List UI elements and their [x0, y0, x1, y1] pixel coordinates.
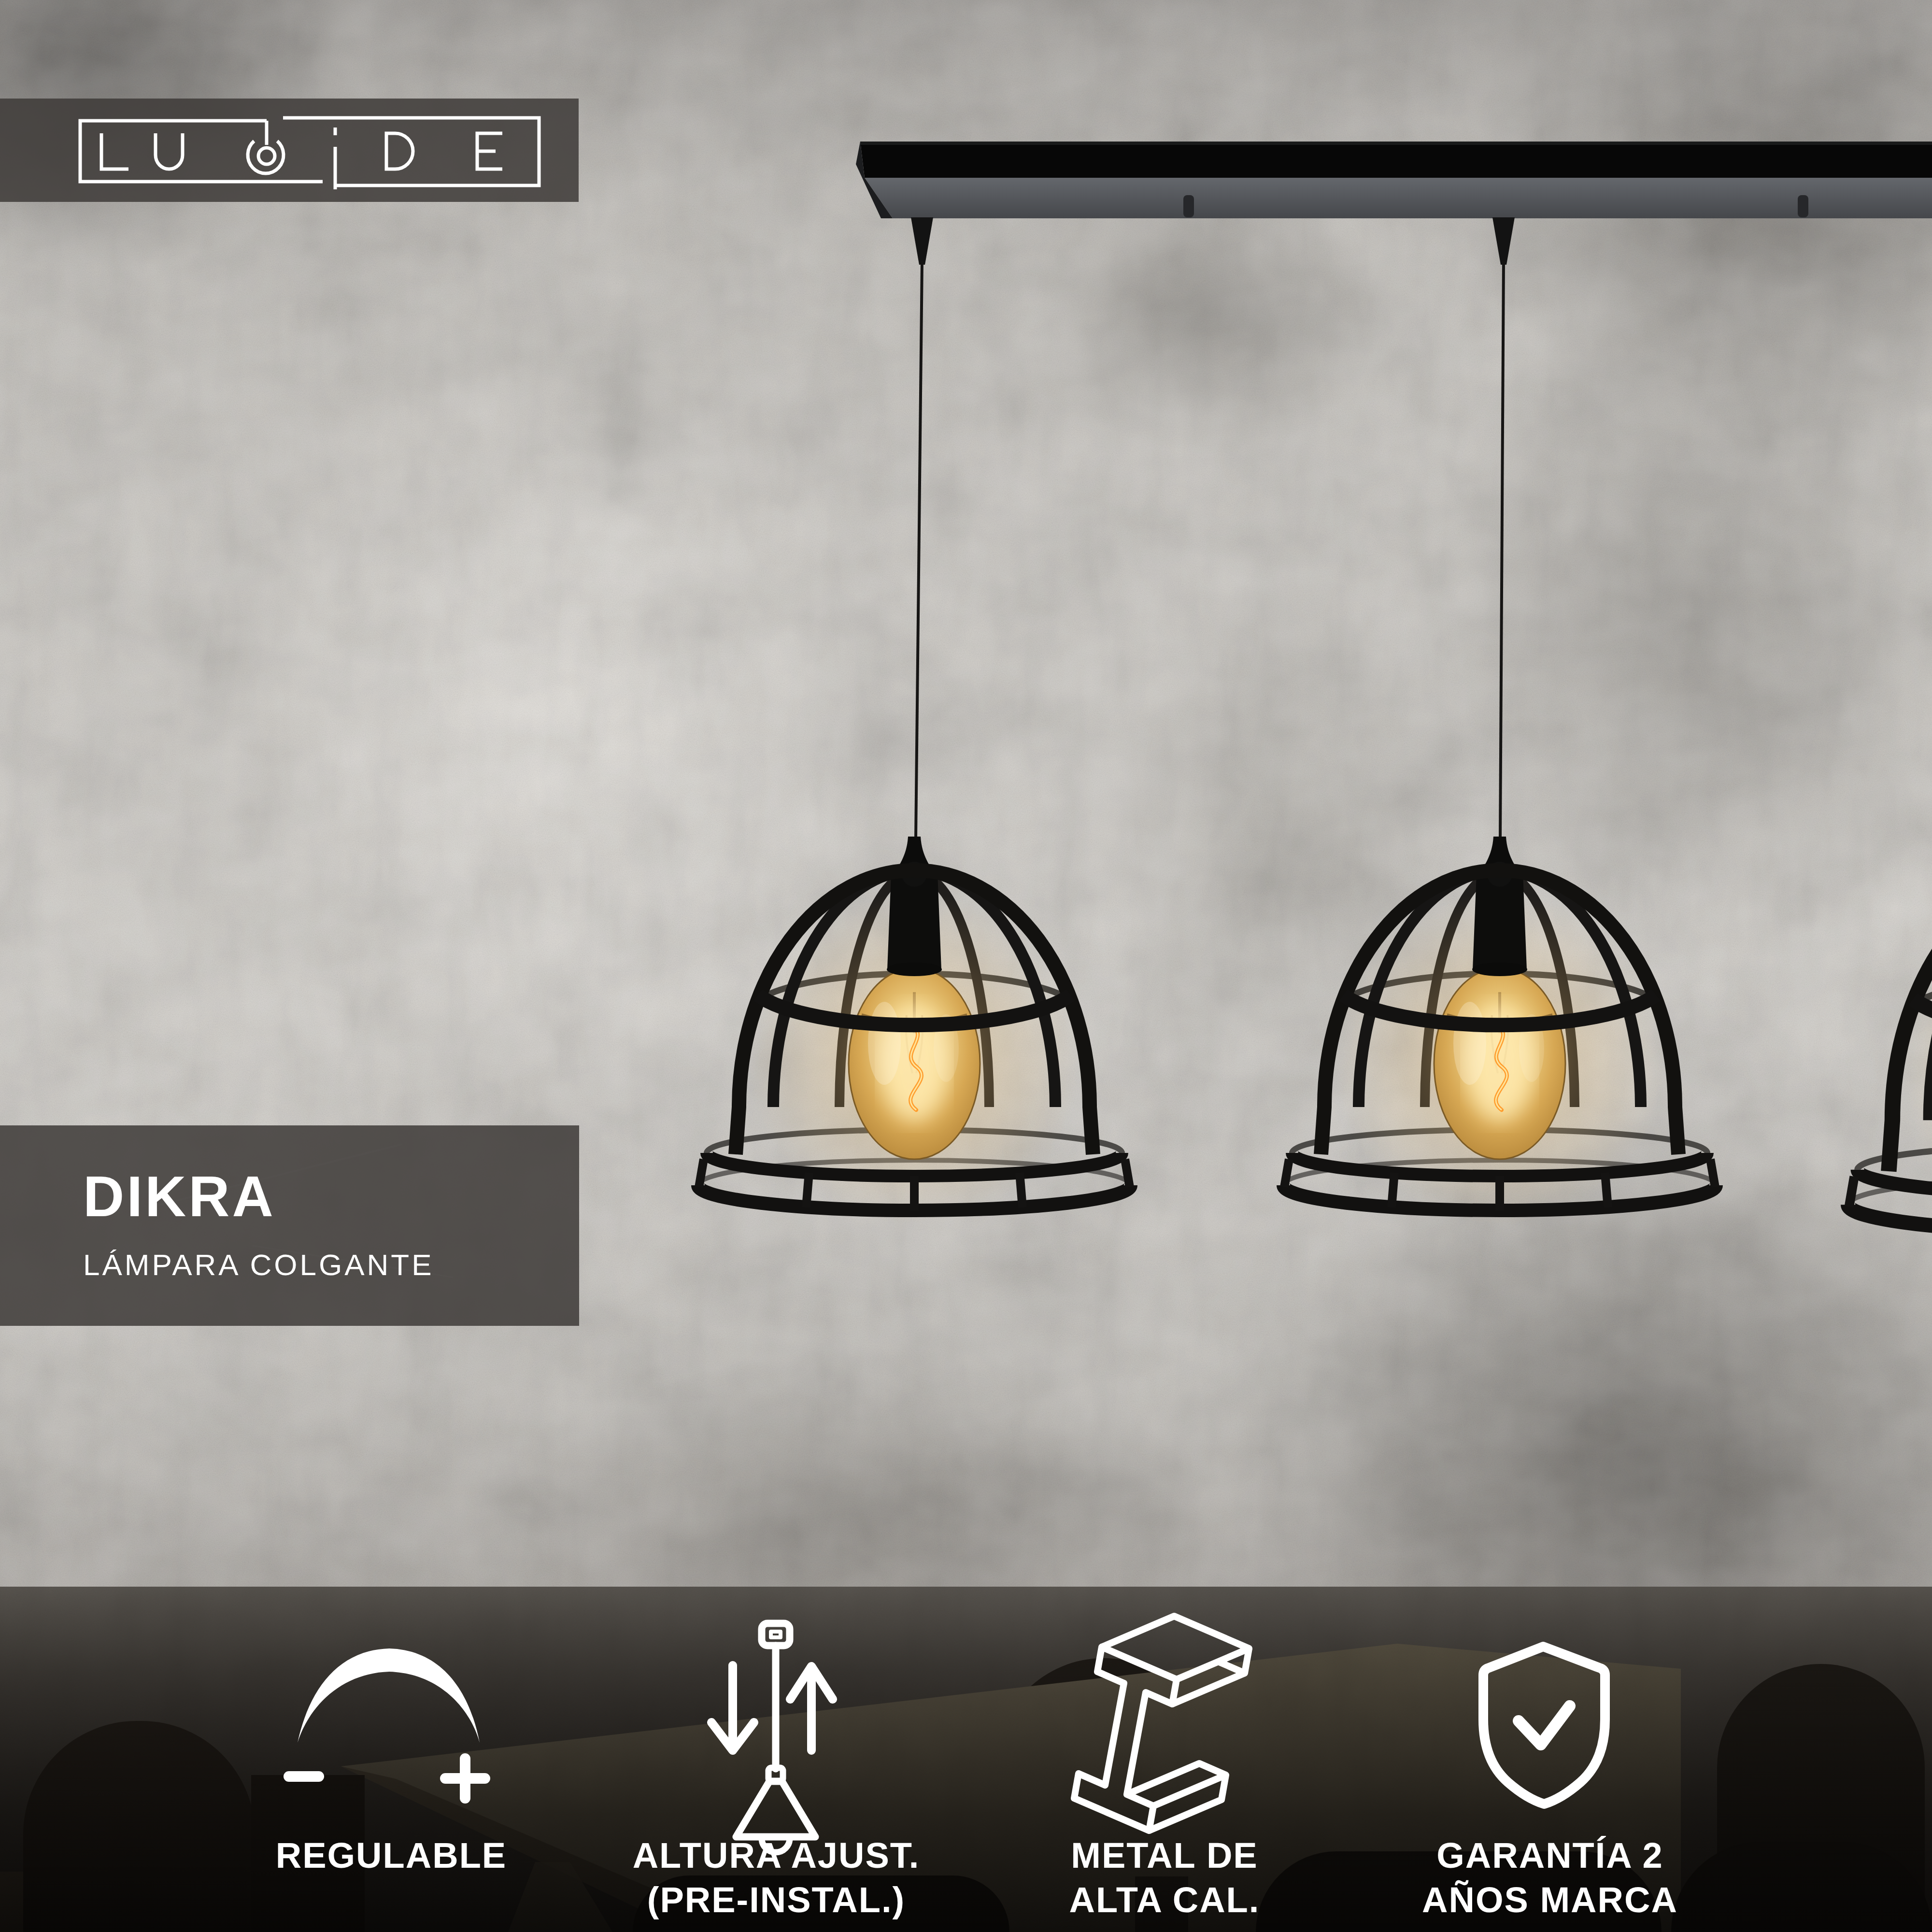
logo-letter-C: [248, 141, 284, 173]
feature-label-metal: METAL DE ALTA CAL.: [976, 1833, 1353, 1922]
feature-line: METAL DE: [976, 1833, 1353, 1878]
feature-line: ALTA CAL.: [976, 1878, 1353, 1922]
feature-line: GARANTÍA 2: [1362, 1833, 1738, 1878]
lucide-logo: [0, 99, 579, 202]
feature-label-dimmable: REGULABLE: [203, 1833, 580, 1878]
feature-line: (PRE-INSTAL.): [588, 1878, 965, 1922]
logo-letter-U: [156, 133, 183, 169]
feature-line: REGULABLE: [203, 1833, 580, 1878]
product-subtitle: LÁMPARA COLGANTE: [83, 1250, 579, 1280]
feature-label-warranty: GARANTÍA 2 AÑOS MARCA: [1362, 1833, 1738, 1922]
logo-letter-L: [101, 133, 128, 169]
feature-label-height: ALTURA AJUST. (PRE-INSTAL.): [588, 1833, 965, 1922]
product-title-box: DIKRA LÁMPARA COLGANTE: [0, 1125, 579, 1326]
product-title: DIKRA: [83, 1168, 579, 1225]
logo-box: LUCIDE: [0, 99, 579, 202]
logo-letter-E: [477, 133, 502, 169]
feature-line: AÑOS MARCA: [1362, 1878, 1738, 1922]
feature-line: ALTURA AJUST.: [588, 1833, 965, 1878]
product-image: LUCIDE DIKRA LÁMPARA COLGANTE: [0, 0, 1932, 1932]
logo-letter-D: [386, 133, 413, 169]
